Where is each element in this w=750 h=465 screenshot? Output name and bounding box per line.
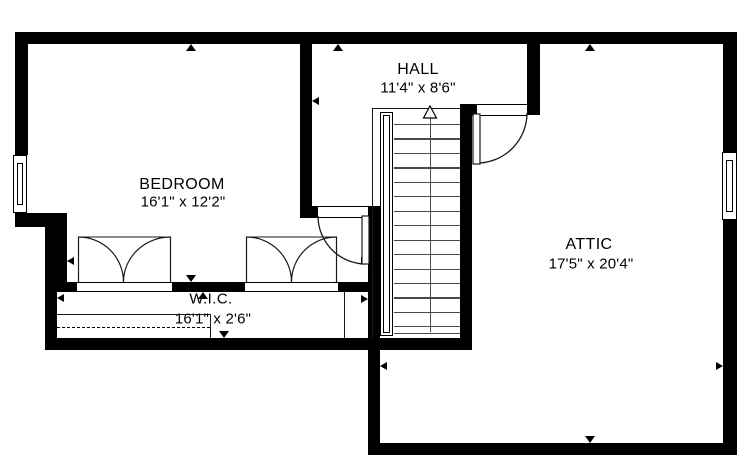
opening-bedroom-door [318, 206, 368, 218]
wall-closet-segment-a [57, 282, 77, 292]
wic-dimensions: 16'1" x 2'6" [175, 311, 251, 328]
closet-b-left-leaf-arc [247, 237, 292, 282]
stair-tread [394, 225, 460, 226]
bedroom-label: BEDROOM [139, 176, 224, 194]
stair-tread [394, 196, 460, 197]
wall-wic-bottom [45, 338, 472, 350]
hall-label: HALL [397, 61, 439, 79]
bedroom-door-arc [318, 216, 366, 264]
marker-attic-bottom [585, 436, 595, 443]
window-left-pane [17, 163, 23, 205]
stair-tread [394, 326, 460, 327]
wall-hall-attic [527, 44, 540, 115]
closet-a-right-leaf-arc [124, 237, 171, 282]
wall-closet-segment-c [338, 282, 372, 292]
marker-wic-top [198, 292, 208, 299]
opening-closet-a [77, 282, 172, 292]
stair-treads [394, 108, 460, 338]
closet-a-left-leaf-arc [79, 237, 124, 282]
stair-tread [394, 138, 460, 139]
wall-stair-west-attic-left [368, 206, 380, 455]
hall-dimensions: 11'4" x 8'6" [380, 80, 455, 97]
marker-wic-west [57, 294, 64, 302]
marker-bedroom-top [186, 44, 196, 51]
stair-tread [394, 297, 460, 298]
wall-stair-door-stub [460, 104, 477, 116]
stair-tread [394, 269, 460, 270]
wall-bottom [368, 443, 737, 455]
stair-tread [394, 167, 460, 168]
marker-bedroom-south [186, 275, 196, 282]
wall-bedroom-hall [300, 44, 312, 207]
stair-outline-left [372, 108, 373, 338]
stair-center-line [430, 112, 431, 332]
marker-wic-east [361, 295, 368, 303]
marker-bedroom-west [67, 257, 74, 265]
attic-label: ATTIC [565, 236, 612, 254]
bedroom-dimensions: 16'1" x 12'2" [141, 194, 226, 211]
marker-attic-east [716, 362, 723, 370]
wic-label: W.I.C. [189, 291, 232, 308]
attic-door-leaf [473, 114, 480, 164]
attic-door-arc [477, 113, 527, 163]
stair-handrail-inner [383, 115, 390, 333]
wall-stair-east [460, 104, 472, 350]
stair-tread [394, 312, 460, 313]
stair-tread [394, 153, 460, 154]
wall-top [15, 32, 737, 44]
stair-tread [394, 254, 460, 255]
stair-tread [394, 211, 460, 212]
stair-tread [394, 283, 460, 284]
wall-bedroom-door-stub [300, 206, 318, 218]
wall-left-upper [15, 44, 28, 155]
wall-right-upper [723, 32, 737, 152]
floor-plan: BEDROOM 16'1" x 12'2" HALL 11'4" x 8'6" … [0, 0, 750, 465]
marker-attic-top [585, 44, 595, 51]
stair-bottom-line [394, 333, 460, 334]
opening-hall-attic-door [477, 104, 527, 116]
stair-tread [394, 182, 460, 183]
marker-attic-west [380, 362, 387, 370]
opening-closet-b [245, 282, 338, 292]
wall-left-step-vertical [45, 227, 67, 283]
marker-wic-bottom [219, 331, 229, 338]
closet-b-right-leaf-arc [292, 237, 337, 282]
stair-tread [394, 124, 460, 125]
marker-hall-top [333, 44, 343, 51]
wall-left-step-horizontal [15, 213, 67, 227]
stair-tread [394, 240, 460, 241]
window-right-pane [726, 160, 733, 212]
marker-hall-west [312, 97, 319, 105]
marker-landing-east [361, 257, 368, 265]
wall-right-lower [723, 220, 737, 455]
wic-partition-line [344, 292, 345, 338]
attic-dimensions: 17'5" x 20'4" [549, 256, 634, 273]
